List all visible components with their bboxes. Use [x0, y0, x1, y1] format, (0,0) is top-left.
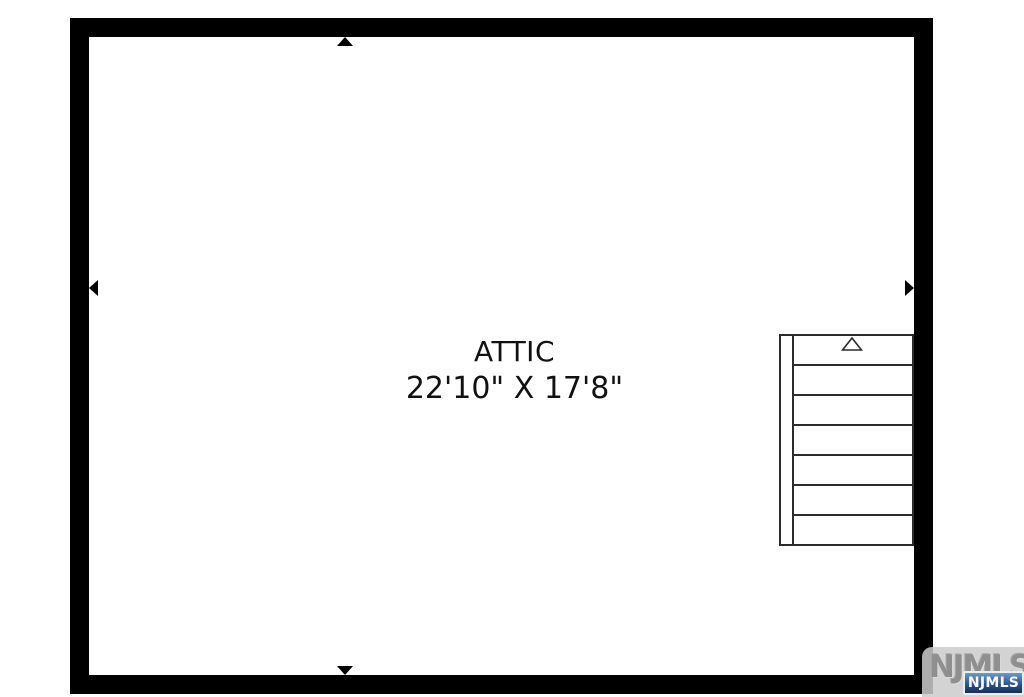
staircase — [779, 334, 914, 546]
stair-tread — [794, 516, 912, 544]
stair-tread — [794, 486, 912, 516]
room-walls: ATTIC 22'10" X 17'8" — [70, 18, 933, 694]
njmls-badge-text: NJMLS — [968, 676, 1019, 690]
floorplan-canvas: ATTIC 22'10" X 17'8" NJMLS NJMLS — [0, 0, 1024, 697]
staircase-treads — [794, 336, 912, 544]
stair-tread — [794, 456, 912, 486]
wall-marker-right-icon — [905, 280, 914, 296]
njmls-logo-badge: NJMLS — [963, 671, 1024, 695]
stairs-direction-triangle-icon — [841, 337, 863, 351]
stair-tread — [794, 366, 912, 396]
wall-marker-top-icon — [337, 37, 353, 46]
stair-tread — [794, 426, 912, 456]
stair-tread — [794, 396, 912, 426]
wall-marker-bottom-icon — [337, 666, 353, 675]
wall-marker-left-icon — [89, 280, 98, 296]
